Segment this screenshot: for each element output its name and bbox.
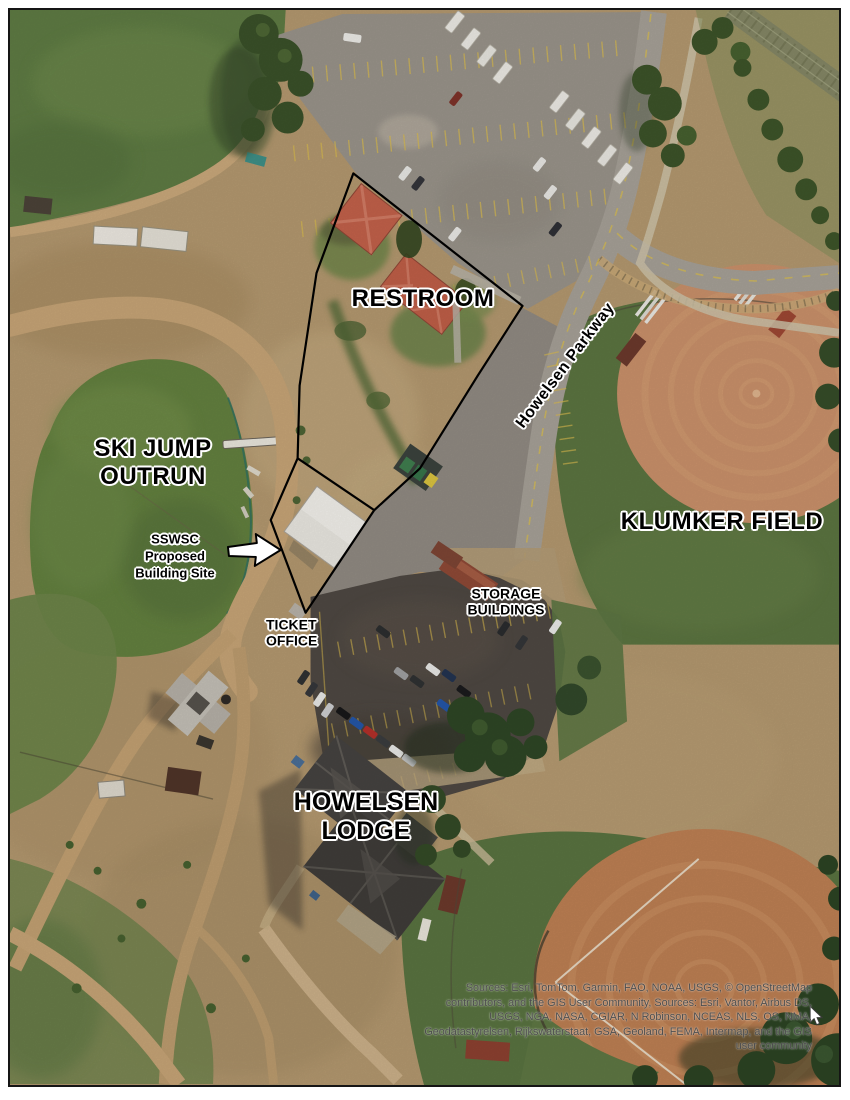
grain-texture: [10, 10, 839, 1085]
map-frame: [8, 8, 841, 1087]
satellite-map-canvas[interactable]: [10, 10, 839, 1085]
